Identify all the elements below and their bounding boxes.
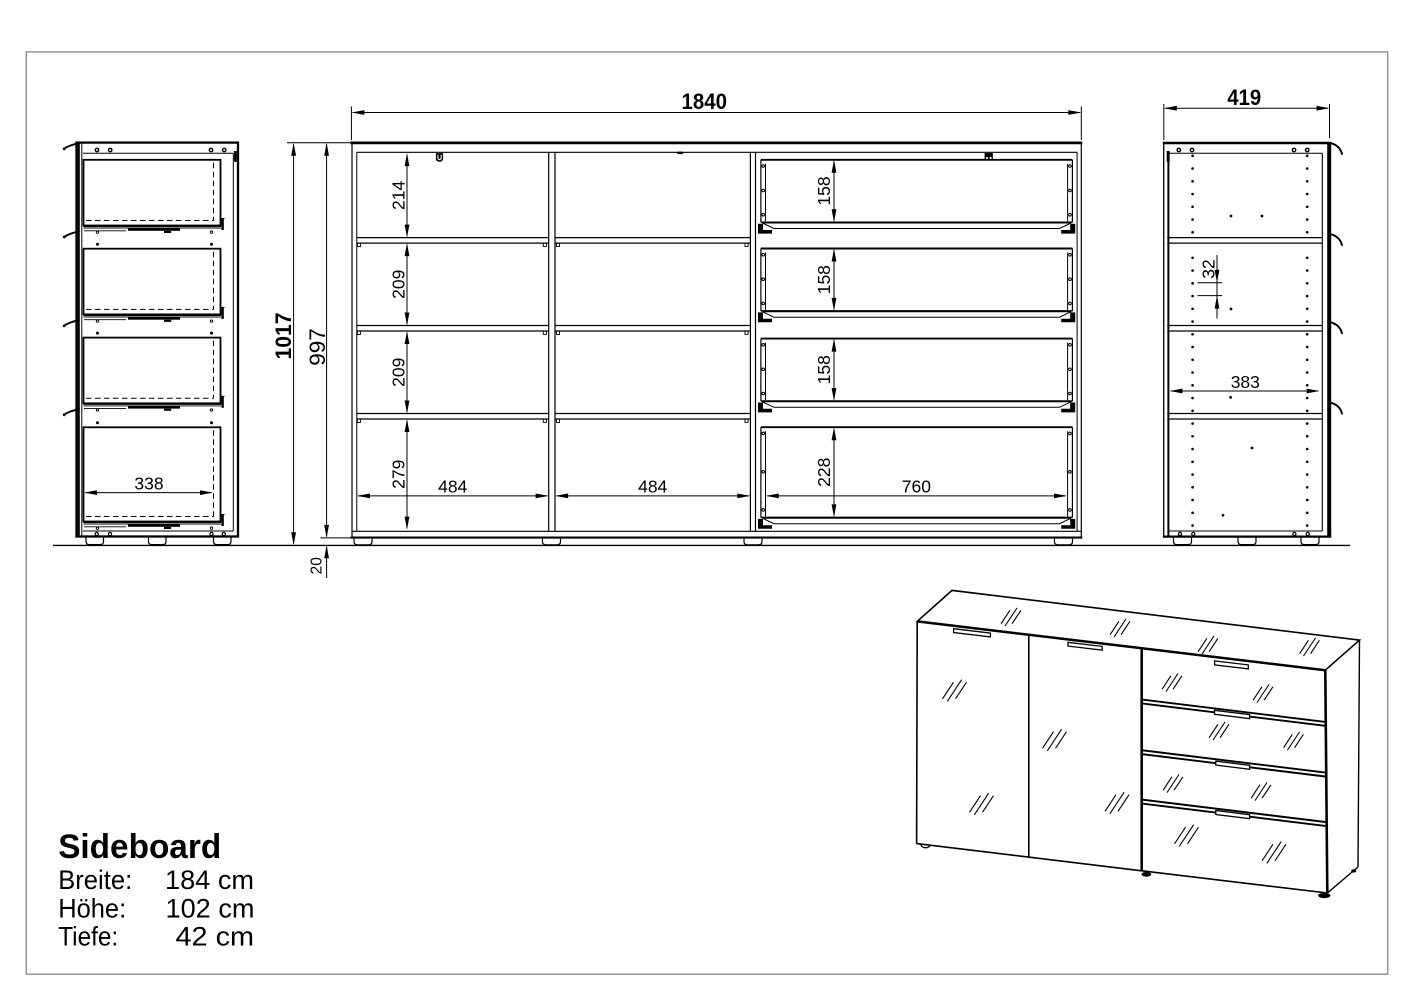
svg-text:760: 760 [902, 476, 931, 496]
svg-text:158: 158 [814, 176, 834, 205]
svg-text:158: 158 [814, 265, 834, 294]
svg-text:997: 997 [305, 328, 330, 366]
svg-text:1017: 1017 [271, 313, 296, 360]
svg-text:214: 214 [389, 180, 409, 209]
svg-text:228: 228 [814, 458, 834, 487]
svg-text:Breite:: Breite: [58, 865, 132, 895]
svg-text:32: 32 [1199, 259, 1219, 278]
svg-text:383: 383 [1231, 372, 1260, 392]
svg-text:338: 338 [134, 473, 163, 493]
svg-text:42 cm: 42 cm [176, 922, 255, 952]
svg-text:279: 279 [389, 460, 409, 489]
svg-text:1840: 1840 [682, 89, 728, 114]
svg-text:209: 209 [389, 358, 409, 387]
svg-text:20: 20 [309, 557, 326, 575]
svg-text:209: 209 [389, 270, 409, 299]
svg-text:158: 158 [814, 355, 834, 384]
svg-text:Sideboard: Sideboard [58, 828, 221, 866]
svg-text:Tiefe:: Tiefe: [58, 922, 118, 952]
svg-text:Höhe:: Höhe: [58, 893, 126, 923]
svg-text:484: 484 [638, 476, 667, 496]
svg-text:102 cm: 102 cm [166, 893, 255, 923]
svg-text:484: 484 [438, 476, 467, 496]
svg-text:184 cm: 184 cm [165, 865, 254, 895]
svg-text:419: 419 [1227, 85, 1261, 110]
